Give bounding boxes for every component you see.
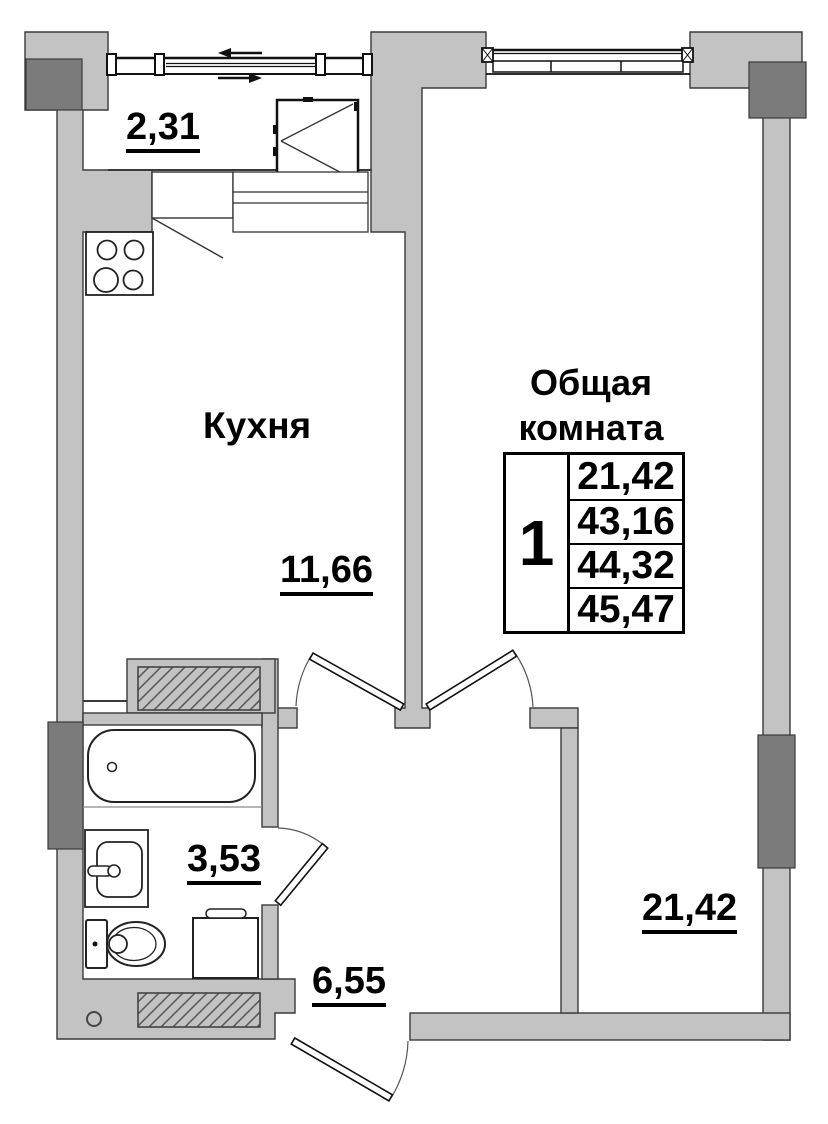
balcony-area-value: 2,31 [126, 106, 200, 153]
wall-hall-living-top [530, 708, 578, 728]
stove [86, 232, 153, 295]
washing-machine [193, 909, 258, 978]
legend-table-row: 44,32 [570, 543, 682, 587]
faucet-icon [108, 865, 120, 877]
legend-title-line1: Общая [498, 360, 684, 405]
legend-title-line2: комната [498, 405, 684, 450]
legend-rooms-count: 1 [506, 455, 570, 631]
wall-kitchen-living-partition [371, 32, 486, 728]
kitchen-name-value: Кухня [203, 405, 311, 446]
floor-plan-drawing [0, 0, 828, 1124]
balcony-area-label: 2,31 [126, 108, 200, 148]
bathroom-door [275, 828, 327, 905]
slide-arrow-left-icon [218, 48, 262, 58]
drain-icon [108, 763, 117, 772]
riser-circle [87, 1012, 101, 1026]
wall-bottom-right [410, 1013, 790, 1040]
kitchen-name-label: Кухня [203, 407, 311, 446]
washer-lid-icon [206, 909, 246, 918]
wall-hall-living [561, 728, 578, 1013]
vent-shaft-bathroom [138, 667, 260, 710]
wall-bathroom-north [83, 713, 262, 725]
vent-shaft-bottom [138, 993, 260, 1027]
bathtub [88, 730, 255, 802]
living-room-door [426, 650, 533, 710]
window-post-icon [363, 54, 372, 75]
pilaster-top-left [26, 59, 82, 110]
pilaster-right [758, 735, 795, 868]
window-post-icon [155, 54, 164, 75]
kitchen-area-value: 11,66 [280, 549, 373, 596]
legend-table: 1 21,42 43,16 44,32 45,47 [503, 452, 685, 634]
legend-table-row: 21,42 [570, 455, 682, 499]
floor-plan-page: 2,31 Кухня 11,66 3,53 6,55 21,42 Общая к… [0, 0, 828, 1124]
living-room-window [482, 48, 693, 74]
kitchen-door-leaf [310, 653, 404, 710]
pilaster-top-right [749, 62, 806, 118]
entry-door-leaf [291, 1038, 392, 1101]
kitchen-door [296, 653, 404, 710]
balcony-door [152, 172, 233, 258]
kitchen-window-sill [233, 172, 368, 232]
legend-table-row: 45,47 [570, 587, 682, 631]
entry-door [291, 1038, 408, 1101]
window-post-icon [316, 54, 325, 75]
legend-table-row: 43,16 [570, 499, 682, 543]
living-room-door-leaf [426, 650, 516, 710]
bathroom-area-label: 3,53 [187, 840, 261, 880]
sink [85, 830, 148, 907]
hall-area-value: 6,55 [312, 960, 386, 1007]
kitchen-area-label: 11,66 [280, 551, 373, 591]
toilet [86, 920, 165, 968]
hall-area-label: 6,55 [312, 962, 386, 1002]
pilaster-left [48, 722, 83, 849]
legend-title: Общая комната [498, 360, 684, 450]
living-room-area-label: 21,42 [642, 889, 737, 929]
wall-bathroom-east-lower [262, 905, 278, 979]
balcony-door-leaf [152, 218, 223, 258]
window-post-icon [107, 54, 116, 75]
bathroom-door-leaf [275, 844, 327, 906]
living-room-area-value: 21,42 [642, 887, 737, 934]
bathroom-area-value: 3,53 [187, 838, 261, 885]
balcony-window [107, 48, 372, 83]
